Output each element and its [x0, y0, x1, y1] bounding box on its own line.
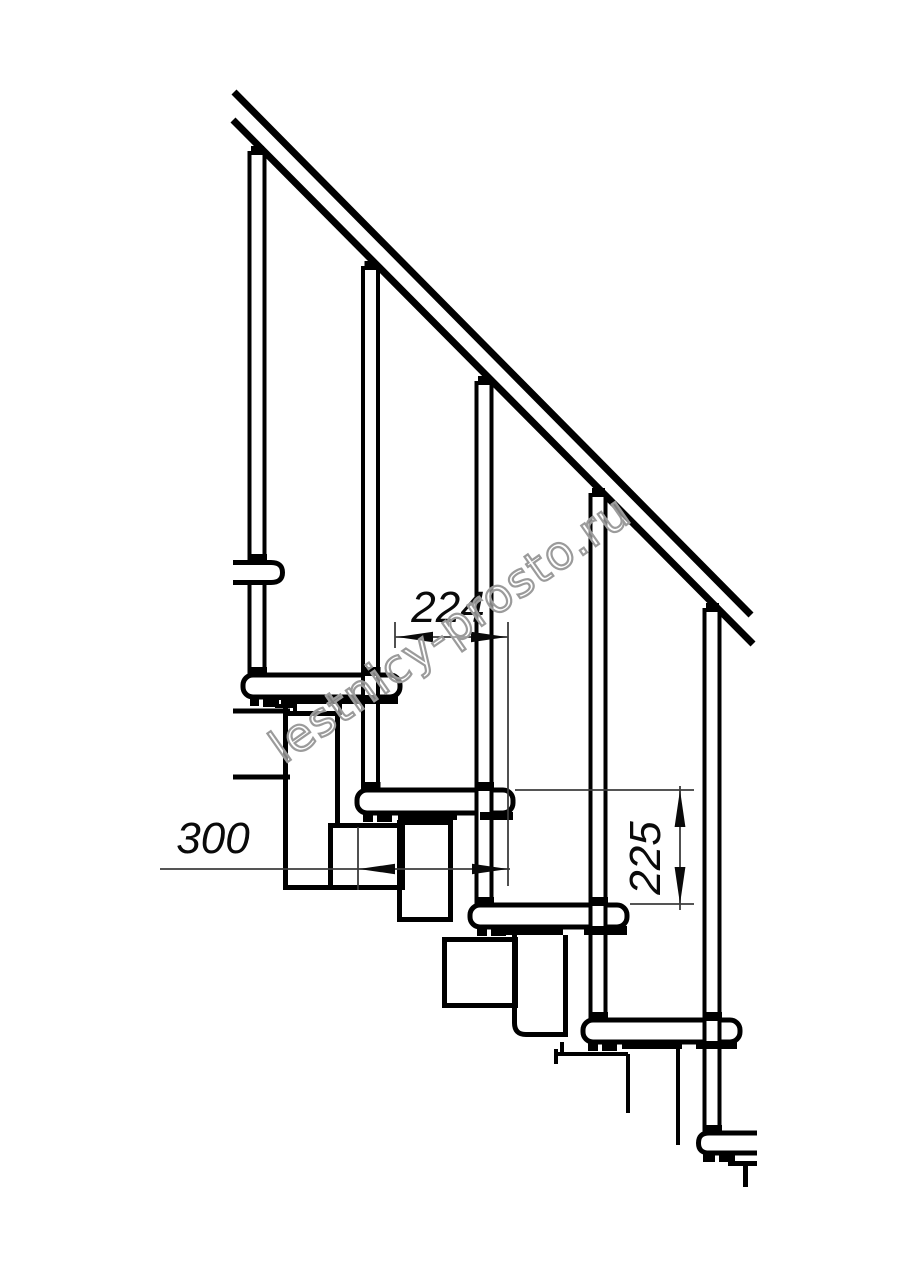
rail-collar [706, 603, 719, 612]
rail-collar [478, 376, 491, 385]
module-box-e [515, 935, 566, 1035]
baluster-4 [591, 495, 606, 1020]
clamp-foot [602, 1041, 617, 1051]
clamp-strip [584, 926, 627, 935]
arrow-left [359, 864, 395, 874]
clamp-foot [377, 812, 392, 822]
seat-collar [475, 897, 494, 906]
module-box-b [331, 826, 403, 888]
lower-floor-bracket [699, 1133, 758, 1153]
module-box-c [400, 823, 451, 920]
clamp-strip [696, 1041, 737, 1049]
pass-collar [703, 1012, 722, 1021]
module-cut-outline [556, 1042, 678, 1145]
clamp-foot [588, 1041, 598, 1051]
clamp-foot [263, 696, 277, 707]
clamp-foot [477, 926, 487, 936]
arrow-down [675, 867, 686, 904]
seat-collar [589, 1012, 608, 1021]
staircase-drawing: 224 300 225 lestnicy-prosto.ru [0, 0, 914, 1280]
clamp-foot [491, 926, 506, 936]
baluster-1 [250, 153, 265, 675]
cutoff-lines [556, 1042, 757, 1187]
seat-collar [703, 1125, 722, 1134]
clamp-foot [363, 812, 373, 822]
clamp-foot [719, 1152, 735, 1162]
clamp-strip [506, 926, 563, 935]
rail-collar [251, 146, 264, 155]
clamp-foot [703, 1152, 715, 1162]
dim-value-depth: 300 [176, 814, 250, 863]
clamp-foot [250, 696, 259, 706]
seat-collar [362, 782, 381, 791]
arrow-up [675, 790, 686, 827]
dim-value-rise: 225 [621, 821, 670, 896]
drawing-canvas: 224 300 225 lestnicy-prosto.ru [0, 0, 914, 1280]
pass-collar [589, 897, 608, 906]
watermark-text: lestnicy-prosto.ru [259, 484, 640, 773]
seat-collar [248, 554, 267, 563]
seat-collar [248, 667, 267, 676]
pass-collar [475, 782, 494, 791]
upper-landing-bracket [233, 563, 283, 583]
balusters [250, 153, 720, 1133]
rail-collar [365, 261, 378, 270]
baluster-3 [477, 383, 492, 905]
clamp-strip [398, 812, 457, 820]
baluster-5 [705, 610, 720, 1133]
clamp-strip [622, 1041, 682, 1049]
module-box-d [445, 940, 516, 1006]
floor-cut-outline [728, 1163, 757, 1187]
